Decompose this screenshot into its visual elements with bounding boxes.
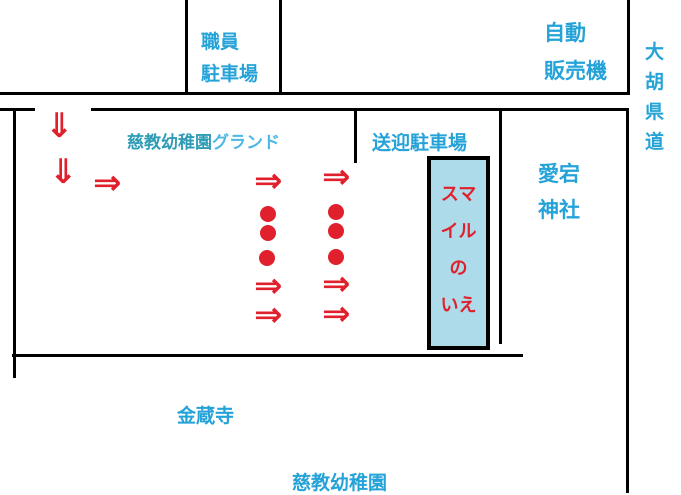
label-pickup-parking: 送迎駐車場 bbox=[372, 128, 467, 155]
label-staff-parking-line2: 駐車場 bbox=[201, 58, 258, 90]
staff-parking-right-border bbox=[279, 0, 282, 93]
smile-house-label-line2: イル bbox=[431, 213, 486, 250]
route-dot-col2-3 bbox=[328, 249, 344, 265]
smile-house-label: スマ イル の いえ bbox=[431, 160, 486, 324]
access-map: 職員 駐車場 自動 販売機 大 胡 県 道 慈教幼稚園グランド 送迎駐車場 愛宕… bbox=[0, 0, 681, 495]
label-kindergarten-ground-name: 慈教幼稚園 bbox=[127, 133, 212, 153]
ground-left-border bbox=[13, 108, 16, 378]
label-atago-shrine-line2: 神社 bbox=[538, 192, 580, 228]
route-arrow-right-col2-bottom: ⇒ bbox=[322, 297, 351, 331]
road-edge-top-lower-left bbox=[0, 108, 35, 111]
route-arrow-down-1: ⇓ bbox=[45, 109, 74, 143]
label-vending-machine-line1: 自動 bbox=[544, 14, 607, 52]
label-prefectural-road-char2: 胡 bbox=[645, 67, 664, 97]
label-vending-machine-line2: 販売機 bbox=[544, 52, 607, 90]
road-edge-bottom bbox=[12, 354, 523, 357]
label-atago-shrine: 愛宕 神社 bbox=[538, 156, 580, 228]
smile-house-label-line4: いえ bbox=[431, 287, 486, 324]
pickup-parking-left-border bbox=[354, 108, 357, 163]
label-atago-shrine-line1: 愛宕 bbox=[538, 156, 580, 192]
label-prefectural-road: 大 胡 県 道 bbox=[645, 37, 664, 157]
label-prefectural-road-char4: 道 bbox=[645, 127, 664, 157]
route-arrow-right-col1-top: ⇒ bbox=[254, 164, 283, 198]
label-kindergarten-ground: 慈教幼稚園グランド bbox=[127, 128, 280, 153]
label-staff-parking-line1: 職員 bbox=[201, 26, 258, 58]
prefectural-road-edge-upper bbox=[627, 0, 630, 93]
route-dot-col2-2 bbox=[328, 223, 344, 239]
route-arrow-right-entry: ⇒ bbox=[93, 166, 122, 200]
smile-house-box: スマ イル の いえ bbox=[427, 156, 490, 350]
route-dot-col1-3 bbox=[259, 250, 275, 266]
route-arrow-right-col2-top: ⇒ bbox=[322, 160, 351, 194]
label-kinzoji-temple: 金蔵寺 bbox=[177, 401, 234, 428]
label-staff-parking: 職員 駐車場 bbox=[201, 26, 258, 90]
shrine-left-border bbox=[499, 108, 502, 344]
route-arrow-right-col1-bottom: ⇒ bbox=[254, 298, 283, 332]
smile-house-label-line1: スマ bbox=[431, 176, 486, 213]
prefectural-road-edge-lower bbox=[626, 108, 629, 493]
road-edge-top-upper bbox=[0, 92, 630, 95]
label-kindergarten: 慈教幼稚園 bbox=[292, 468, 387, 495]
route-dot-col2-1 bbox=[328, 204, 344, 220]
label-kindergarten-ground-suffix: グランド bbox=[212, 133, 280, 153]
route-dot-col1-2 bbox=[260, 225, 276, 241]
smile-house-label-line3: の bbox=[431, 250, 486, 287]
label-prefectural-road-char1: 大 bbox=[645, 37, 664, 67]
label-prefectural-road-char3: 県 bbox=[645, 97, 664, 127]
route-dot-col1-1 bbox=[260, 206, 276, 222]
staff-parking-left-border bbox=[185, 0, 188, 93]
label-vending-machine: 自動 販売機 bbox=[544, 14, 607, 90]
road-edge-top-lower-right bbox=[91, 108, 628, 111]
route-arrow-down-2: ⇓ bbox=[49, 155, 78, 189]
